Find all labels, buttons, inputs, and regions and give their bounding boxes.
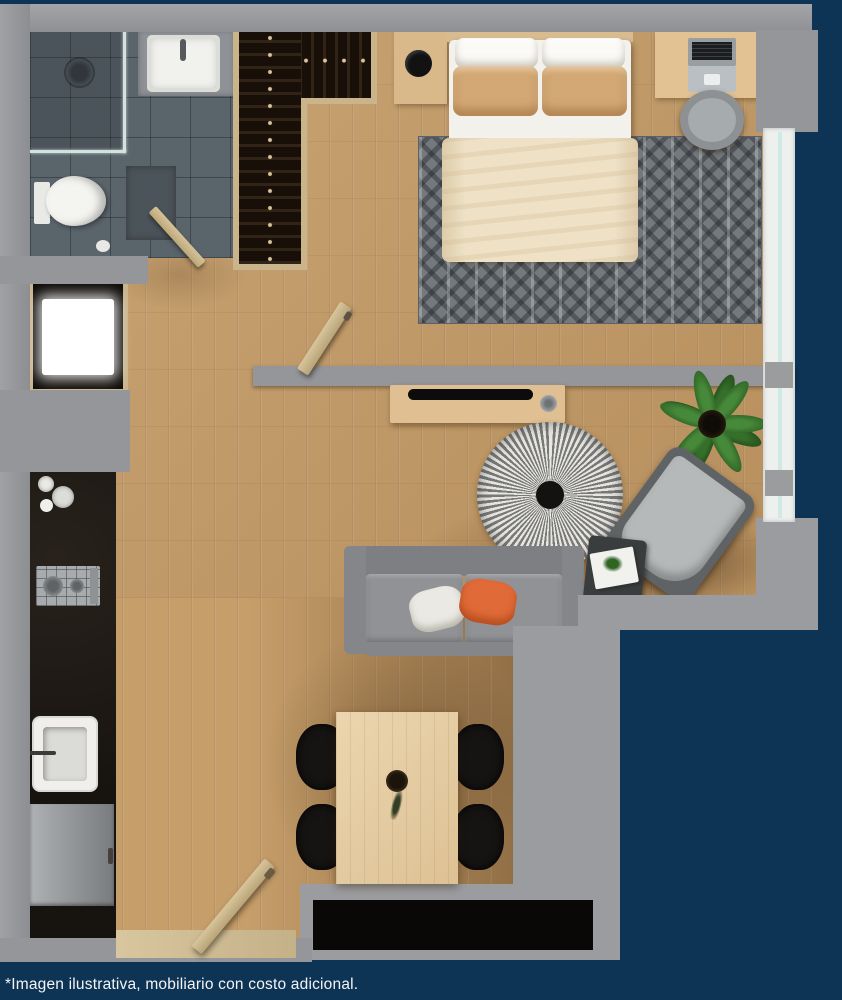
entry-closet-black: [313, 900, 593, 950]
desk-chair-cushion: [688, 98, 736, 142]
laptop-screen: [688, 38, 736, 66]
window-mullion: [765, 470, 793, 496]
wall-left: [0, 4, 30, 962]
tv-console: [390, 385, 565, 423]
pillow-white-right: [542, 38, 625, 68]
washer-door-glow: [42, 299, 114, 375]
nightstand: [394, 30, 447, 104]
sofa-arm-left: [344, 546, 366, 654]
dining-table: [336, 712, 458, 884]
pillow-tan-left: [453, 66, 538, 116]
burner-small-icon: [70, 579, 84, 593]
table-plant-icon: [602, 555, 624, 573]
window-mullion: [765, 362, 793, 388]
washer-cabinet: [28, 272, 128, 394]
laptop-keyboard: [692, 42, 732, 60]
pillow-tan-right: [542, 66, 627, 116]
double-bed: [447, 30, 633, 262]
floor-plan-canvas: *Imagen ilustrativa, mobiliario con cost…: [0, 0, 842, 1000]
rug-center: [536, 481, 564, 509]
shower-glass-horizontal: [30, 150, 126, 153]
wall-top: [0, 4, 812, 32]
wall-bathroom-south: [0, 256, 148, 284]
kitchen-sink: [34, 718, 96, 790]
shower-area: [30, 30, 126, 150]
speaker-icon: [540, 395, 557, 412]
duvet: [442, 138, 638, 262]
fridge-handle-icon: [108, 848, 113, 864]
sink-faucet-icon: [180, 39, 186, 61]
sink-faucet-icon: [26, 751, 56, 755]
shower-glass-vertical: [123, 30, 126, 153]
dish-bowl: [52, 486, 74, 508]
vase-sprig-icon: [389, 789, 405, 820]
refrigerator: [30, 804, 114, 906]
stove: [36, 566, 100, 606]
wall-top-right: [756, 30, 818, 132]
dining-chair: [452, 724, 504, 790]
toilet-paper: [96, 240, 110, 252]
desk-chair: [680, 90, 744, 150]
plant-pot: [698, 410, 726, 438]
wall-block-left: [0, 390, 130, 472]
disclaimer-caption: *Imagen ilustrativa, mobiliario con cost…: [5, 976, 358, 994]
wall-band-southeast: [578, 595, 818, 630]
partition-wall: [253, 366, 795, 386]
round-tray: [405, 50, 432, 77]
laptop-trackpad: [704, 74, 720, 85]
desk: [655, 32, 765, 98]
window-right: [763, 128, 795, 522]
tv: [408, 389, 533, 400]
wall-bottom-center: [300, 884, 620, 960]
dish-bowl: [38, 476, 54, 492]
burner-large-icon: [43, 576, 63, 596]
dining-chair: [452, 804, 504, 870]
dish-bowl: [40, 499, 53, 512]
stove-controls: [90, 568, 98, 604]
wall-vertical-southeast: [513, 626, 620, 888]
closet-clothes-side: [239, 30, 301, 264]
window-glass-line: [778, 132, 782, 518]
laptop-body: [688, 66, 736, 92]
sofa-back: [344, 546, 584, 576]
wall-right-mid: [756, 518, 818, 602]
pillow-white-left: [455, 38, 538, 68]
shower-head: [66, 59, 93, 86]
